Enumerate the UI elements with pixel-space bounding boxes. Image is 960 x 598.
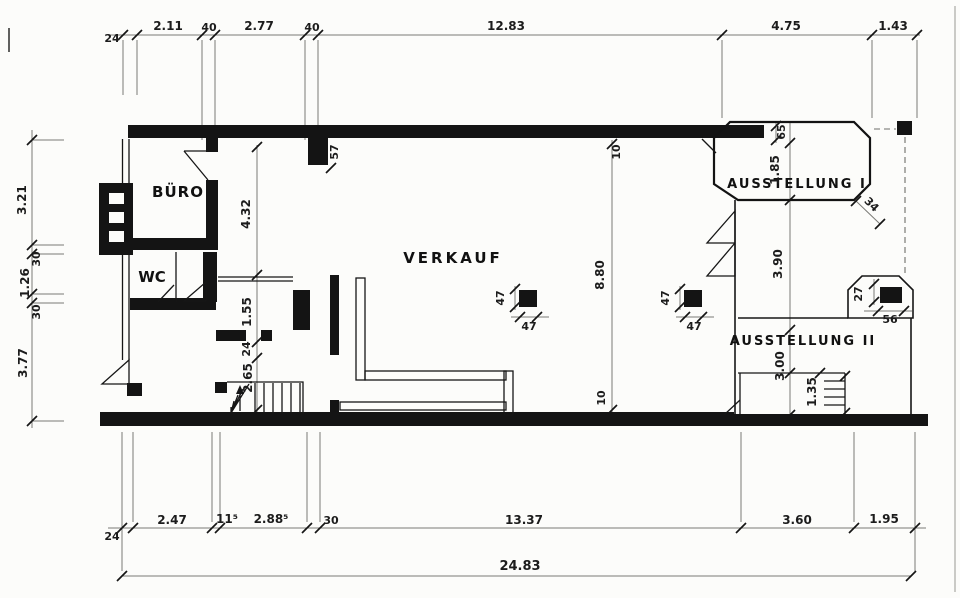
dim-corridor-b: 1.55	[240, 297, 254, 327]
column-2	[684, 290, 702, 307]
dim-exhibit-a: 3.90	[771, 249, 785, 279]
dim-bottom-a: 2.47	[157, 513, 187, 527]
room-label-verkauf: VERKAUF	[403, 249, 503, 267]
column-1	[519, 290, 537, 307]
dim-top-b: 40	[201, 21, 217, 34]
counters	[340, 278, 513, 415]
dim-bottom-d: 30	[323, 514, 339, 527]
dim-top-a: 2.11	[153, 19, 183, 33]
wall-pier	[308, 138, 328, 165]
dim-display-height: 1.85	[768, 155, 782, 185]
dim-column3-h: 27	[852, 286, 865, 301]
wall-buero-a	[206, 138, 218, 152]
staircase	[227, 382, 303, 414]
room-label-ausstellung2: AUSSTELLUNG II	[730, 334, 877, 349]
floor-plan-drawing: BÜRO WC VERKAUF AUSSTELLUNG I AUSSTELLUN…	[0, 0, 960, 598]
dim-exhibit-c: 1.35	[805, 377, 819, 407]
dim-display-chamfer: 34	[861, 195, 881, 215]
dim-corridor-d: 2.65	[241, 363, 255, 393]
column-3	[880, 287, 902, 303]
dim-bottom-b: 11⁵	[216, 512, 238, 526]
display-zigzag	[707, 211, 735, 276]
wall-bottom	[100, 412, 734, 426]
wall-mid-b	[261, 330, 272, 341]
floor-plan-page: BÜRO WC VERKAUF AUSSTELLUNG I AUSSTELLUN…	[0, 0, 960, 598]
dim-left-c: 1.26	[18, 268, 32, 298]
dim-top-e: 12.83	[487, 19, 525, 33]
shelf-band	[340, 402, 506, 410]
counter-vertical	[356, 278, 365, 380]
dim-corridor-a: 4.32	[239, 199, 253, 229]
extension-lines-left	[32, 140, 64, 421]
dim-hall-bottom: 10	[595, 390, 608, 406]
dim-column3-w: 56	[882, 313, 898, 326]
corner-pier	[897, 121, 912, 135]
dim-top-f: 4.75	[771, 19, 801, 33]
dim-bottom-c: 2.88⁵	[254, 512, 289, 526]
dim-left-a: 3.21	[15, 185, 29, 215]
wall-stair-stub	[215, 382, 227, 393]
wall-below-wc	[130, 298, 216, 310]
dim-left-e: 3.77	[16, 348, 30, 378]
dim-display-ledge: 65	[775, 124, 788, 139]
dim-hall-height: 8.80	[593, 260, 607, 290]
dim-left-b: 30	[30, 251, 43, 267]
hidden-lines	[874, 129, 905, 273]
dim-bottom-wall: 24	[104, 530, 120, 543]
dim-exhibit-b: 3.00	[773, 351, 787, 381]
wall-bottom-right	[734, 414, 928, 426]
dim-top-c: 2.77	[244, 19, 274, 33]
dim-pier: 57	[328, 144, 341, 159]
dim-bottom-f: 3.60	[782, 513, 812, 527]
room-label-ausstellung1: AUSSTELLUNG I	[727, 177, 867, 192]
room-label-wc: WC	[138, 268, 166, 286]
room-label-buero: BÜRO	[152, 182, 204, 201]
dim-hall-top: 10	[610, 144, 623, 160]
dim-bottom-g: 1.95	[869, 512, 899, 526]
dim-column1-w: 47	[521, 320, 536, 333]
dim-top-d: 40	[304, 21, 320, 34]
doors	[102, 139, 740, 415]
wall-verkauf-partition-b	[330, 400, 339, 414]
counter-horizontal	[365, 371, 506, 380]
wall-top	[128, 125, 764, 138]
exhibition-outlines	[714, 122, 913, 415]
extension-lines-bottom	[122, 432, 915, 571]
dim-corridor-c: 24	[240, 341, 253, 357]
wall-verkauf-partition	[330, 275, 339, 355]
dim-bottom-total: 24.83	[499, 559, 540, 574]
wall-wc-right	[203, 252, 217, 302]
dim-column1-h: 47	[494, 290, 507, 305]
wall-entry-stub	[127, 383, 142, 396]
dim-left-d: 30	[30, 304, 43, 320]
wall-mid-a	[216, 330, 246, 341]
dim-top-g: 1.43	[878, 19, 908, 33]
door-entrance	[102, 360, 129, 384]
dim-column2-w: 47	[686, 320, 701, 333]
door-buero	[184, 151, 208, 180]
wall-mid-vertical	[293, 290, 310, 330]
dim-bottom-e: 13.37	[505, 513, 543, 527]
dim-column2-h: 47	[659, 290, 672, 305]
wall-buero-bottom	[128, 238, 218, 250]
partition-lines	[176, 252, 293, 302]
exhibit-platform	[738, 373, 845, 415]
chimney-flues	[109, 193, 124, 242]
dim-top-wall: 24	[104, 32, 120, 45]
